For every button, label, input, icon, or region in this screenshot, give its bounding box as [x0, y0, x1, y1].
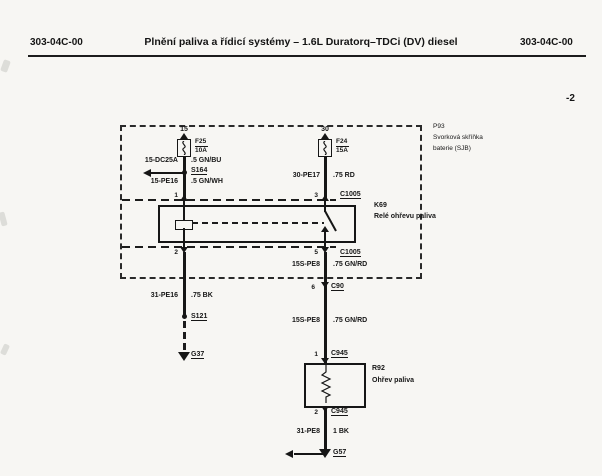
relay-pin3-label: 3: [306, 192, 318, 199]
wire-spec-label: .5 GN/WH: [191, 178, 223, 186]
relay-boundary-dash-top: [122, 199, 336, 201]
ground-g57-label: G57: [333, 449, 346, 457]
fuse-id: F24: [336, 138, 349, 147]
connector-c90-label: C90: [331, 283, 344, 291]
scan-smudge: [0, 343, 10, 356]
wire-spec-label: .75 RD: [333, 172, 355, 180]
wire-segment: [183, 228, 185, 248]
fuse-rating: 10A: [195, 147, 208, 155]
ground-icon: [319, 449, 331, 458]
connector-c1005-bottom-label: C1005: [340, 249, 361, 257]
fuse-icon: [318, 139, 332, 157]
relay-boundary-dash-bottom: [122, 246, 336, 248]
wire-spec-label: .5 GN/BU: [191, 157, 221, 165]
scanned-wiring-diagram-page: 303-04C-00 Plnění paliva a řídicí systém…: [0, 0, 602, 476]
junction-box-id: P93: [433, 122, 445, 132]
header-rule: [28, 55, 586, 57]
scan-smudge: [0, 211, 8, 226]
heater-name: Ohřev paliva: [372, 377, 414, 385]
ground-g37-label: G37: [191, 351, 204, 359]
wire-circuit-label: 31-PE8: [270, 428, 320, 436]
splice-dot-icon: [182, 170, 187, 175]
header-code-right: 303-04C-00: [520, 37, 573, 49]
scan-smudge: [0, 59, 11, 73]
fuse-icon: [177, 139, 191, 157]
header-code-left: 303-04C-00: [30, 37, 83, 49]
wire-spec-label: .75 BK: [191, 292, 213, 300]
relay-id: K69: [374, 202, 387, 210]
page-number: -2: [566, 93, 575, 105]
offpage-arrow-icon: [285, 450, 293, 458]
fuse-element-icon: [320, 141, 330, 155]
relay-name: Relé ohřevu paliva: [374, 213, 436, 221]
heater-pin2-label: 2: [306, 409, 318, 416]
connector-c945-bottom-label: C945: [331, 408, 348, 416]
wire-spec-label: .75 GN/RD: [333, 317, 367, 325]
wire-circuit-label: 15-DC25A: [126, 157, 178, 165]
relay-pin2-label: 2: [166, 249, 178, 256]
relay-linkage-dash: [192, 222, 324, 224]
resistor-icon: [319, 365, 333, 403]
wire-segment: [324, 406, 327, 454]
splice-s164-label: S164: [191, 167, 207, 175]
junction-box-name-line1: Svorková skříňka: [433, 133, 483, 143]
fuse-rating: 15A: [336, 147, 349, 155]
fuse-id-rating: F24 15A: [336, 138, 349, 156]
page-title: Plnění paliva a řídicí systémy – 1.6L Du…: [91, 36, 511, 49]
splice-s121-label: S121: [191, 313, 207, 321]
connector-c945-top-label: C945: [331, 350, 348, 358]
wire-circuit-label: 31-PE16: [126, 292, 178, 300]
wire-circuit-label: 15S-PE8: [268, 317, 320, 325]
fuse-id-rating: F25 10A: [195, 138, 208, 156]
wire-spec-label: 1 BK: [333, 428, 349, 436]
wire-circuit-label: 15-PE16: [126, 178, 178, 186]
relay-pin5-label: 5: [306, 249, 318, 256]
heater-id: R92: [372, 365, 385, 373]
splice-dot-icon: [182, 314, 187, 319]
junction-box-name-line2: baterie (SJB): [433, 144, 471, 154]
wire-segment: [324, 252, 327, 364]
relay-pin1-label: 1: [166, 192, 178, 199]
wire-segment-dashed: [183, 321, 186, 352]
heater-outline: [304, 363, 366, 408]
fuse-id: F25: [195, 138, 208, 147]
connector-c90-pin-label: 6: [303, 284, 315, 291]
wire-circuit-label: 15S-PE8: [268, 261, 320, 269]
pin-arrow-icon: [321, 282, 329, 288]
connector-c1005-top-label: C1005: [340, 191, 361, 199]
wire-segment: [183, 252, 186, 316]
offpage-arrow-icon: [143, 169, 151, 177]
wire-segment: [151, 172, 183, 174]
wire-segment: [183, 201, 185, 220]
ground-icon: [178, 352, 190, 361]
wire-circuit-label: 30-PE17: [268, 172, 320, 180]
fuse-element-icon: [179, 141, 189, 155]
wire-spec-label: .75 GN/RD: [333, 261, 367, 269]
heater-pin1-label: 1: [306, 351, 318, 358]
